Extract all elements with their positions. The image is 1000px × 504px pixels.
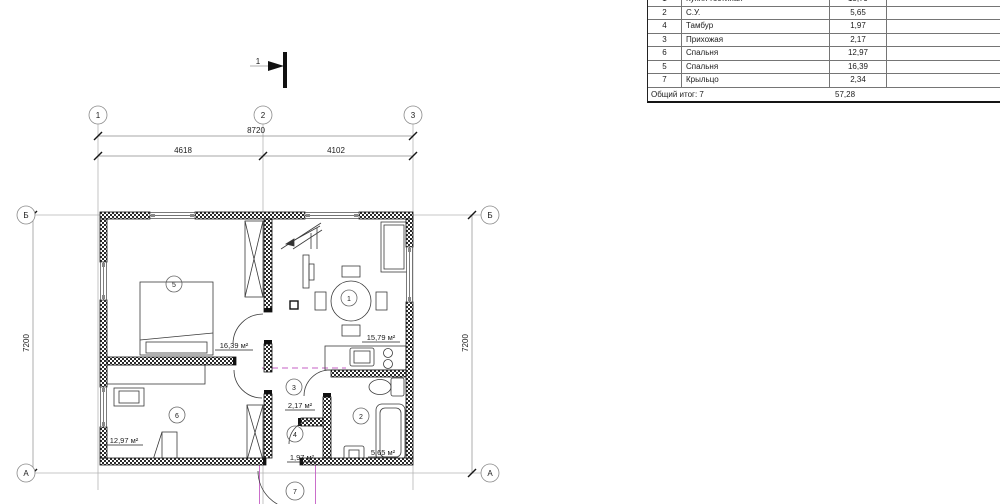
room-number-5: 5 — [172, 282, 176, 289]
room-row-area: 16,39 — [830, 61, 887, 74]
axis-a-right-label: А — [487, 469, 493, 478]
dim-height-left: 7200 — [22, 334, 31, 352]
room-row-area: 1,97 — [830, 20, 887, 33]
cabinet — [381, 222, 407, 272]
door-arc-bedroom6 — [234, 370, 262, 398]
wall-interior — [264, 344, 272, 372]
axis-3-label: 3 — [411, 111, 416, 120]
wall-right — [406, 219, 413, 247]
cooktop-burner — [384, 360, 393, 369]
kitchen-counter — [325, 346, 406, 370]
room-row-area: 5,65 — [830, 7, 887, 20]
table-row: 3 Прихожая 2,17 — [648, 34, 1000, 48]
window — [407, 247, 413, 302]
wall-interior — [301, 418, 323, 426]
area-label-tambour: 1,97 м² — [290, 453, 315, 462]
wardrobe — [245, 221, 263, 297]
table-row: 4 Тамбур 1,97 — [648, 20, 1000, 34]
dim-height-right: 7200 — [461, 334, 470, 352]
room-row-spare — [887, 61, 1000, 74]
room-row-number: 1 — [648, 0, 682, 6]
area-label-bedroom6: 12,97 м² — [110, 436, 139, 445]
area-label-hall: 2,17 м² — [288, 401, 313, 410]
desk — [107, 365, 205, 406]
table-total-value: 57,28 — [832, 88, 1000, 101]
area-label-kitchen: 15,79 м² — [367, 333, 396, 342]
window — [101, 262, 107, 300]
dining-table — [315, 266, 387, 336]
table-row: 6 Спальня 12,97 — [648, 47, 1000, 61]
dim-span-left: 4618 — [174, 146, 192, 155]
wardrobe — [247, 405, 263, 460]
axis-a-left-label: А — [23, 469, 29, 478]
wall-interior — [264, 219, 272, 312]
wall-interior — [264, 394, 272, 458]
toilet — [369, 378, 404, 396]
axis-b-right-label: Б — [487, 211, 492, 220]
room-row-area: 15,79 — [830, 0, 887, 6]
axis-bubble-labels: 1 2 3 Б Б А А — [23, 111, 493, 478]
room-number-7: 7 — [293, 489, 297, 496]
room-number-6: 6 — [175, 413, 179, 420]
table-row: 5 Спальня 16,39 — [648, 61, 1000, 75]
room-row-name: Тамбур — [682, 20, 830, 33]
room-row-number: 2 — [648, 7, 682, 20]
wall-interior — [323, 397, 331, 458]
dim-span-right: 4102 — [327, 146, 345, 155]
wall-interior — [331, 370, 406, 377]
axis-bubbles — [17, 106, 499, 482]
room-row-spare — [887, 0, 1000, 6]
door-arc-bedroom5 — [233, 314, 263, 344]
floorplan-canvas: 8720 4618 4102 7200 7200 1 2 3 Б Б А А 1 — [0, 0, 1000, 504]
room-row-spare — [887, 20, 1000, 33]
wall-interior — [107, 357, 236, 365]
room-row-name: С.У. — [682, 7, 830, 20]
section-arrow-icon — [268, 61, 284, 71]
room-number-2: 2 — [359, 414, 363, 421]
window — [101, 387, 107, 427]
dim-overall-width: 8720 — [247, 126, 265, 135]
table-footer-row: Общий итог: 7 57,28 — [648, 88, 1000, 101]
room-row-name: Спальня — [682, 61, 830, 74]
axis-b-left-label: Б — [23, 211, 28, 220]
bed — [140, 282, 213, 355]
room-row-area: 12,97 — [830, 47, 887, 60]
room-number-4: 4 — [293, 432, 297, 439]
window — [305, 213, 359, 219]
stairs — [281, 223, 322, 249]
windows — [101, 213, 413, 428]
room-row-spare — [887, 34, 1000, 47]
cooktop-burner — [384, 349, 393, 358]
room-row-spare — [887, 7, 1000, 20]
room-row-area: 2,17 — [830, 34, 887, 47]
boiler — [290, 301, 298, 309]
room-row-area: 2,34 — [830, 74, 887, 87]
axis-1-label: 1 — [96, 111, 101, 120]
room-number-3: 3 — [292, 385, 296, 392]
axis-2-label: 2 — [261, 111, 266, 120]
door-jambs — [233, 308, 331, 465]
wall-left — [100, 427, 107, 458]
wall-bottom — [300, 458, 413, 465]
section-label: 1 — [256, 57, 261, 66]
tv-console — [303, 255, 314, 288]
wall-top — [195, 212, 305, 219]
room-row-number: 7 — [648, 74, 682, 87]
room-row-spare — [887, 74, 1000, 87]
room-row-number: 4 — [648, 20, 682, 33]
room-schedule-table: 1 Кухня-гостиная 15,79 2 С.У. 5,65 4 Там… — [647, 0, 1000, 103]
room-row-name: Крыльцо — [682, 74, 830, 87]
area-label-bathroom: 5,65 м² — [371, 448, 396, 457]
room-row-number: 3 — [648, 34, 682, 47]
wall-left — [100, 300, 107, 387]
room-row-name: Прихожая — [682, 34, 830, 47]
table-total-label: Общий итог: 7 — [648, 88, 832, 101]
room-row-number: 6 — [648, 47, 682, 60]
wall-top — [100, 212, 150, 219]
area-label-bedroom5: 16,39 м² — [220, 341, 249, 350]
door-arc-bathroom — [304, 370, 330, 396]
room-row-name: Спальня — [682, 47, 830, 60]
room-row-name: Кухня-гостиная — [682, 0, 830, 6]
wall-top — [359, 212, 413, 219]
wall-left — [100, 219, 107, 262]
wall-bottom — [100, 458, 266, 465]
room-row-number: 5 — [648, 61, 682, 74]
wall-right — [406, 302, 413, 458]
room-number-1: 1 — [347, 296, 351, 303]
room-row-spare — [887, 47, 1000, 60]
dimension-labels: 8720 4618 4102 7200 7200 — [22, 126, 470, 352]
table-row: 2 С.У. 5,65 — [648, 7, 1000, 21]
window — [150, 213, 195, 219]
section-cut-marker: 1 — [250, 52, 287, 88]
table-row: 7 Крыльцо 2,34 — [648, 74, 1000, 88]
